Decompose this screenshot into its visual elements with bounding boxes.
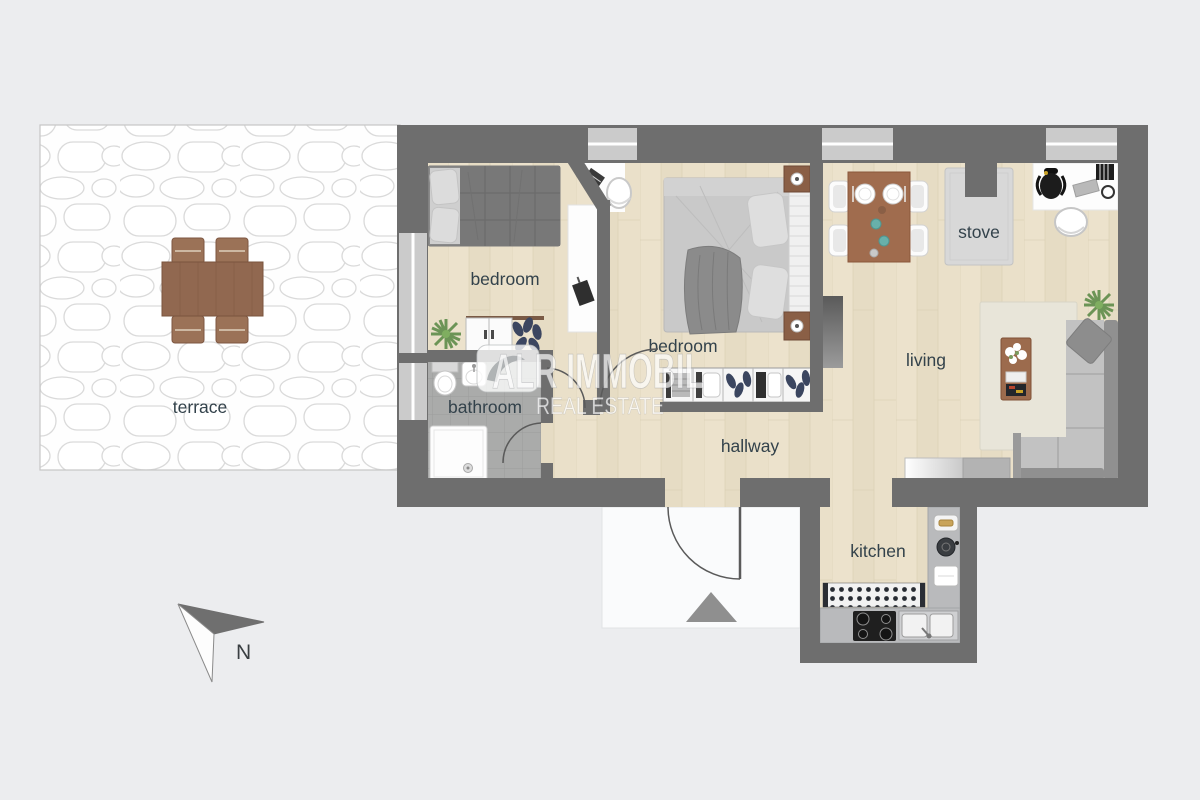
wall-chimney [965, 160, 997, 197]
headboard [789, 186, 810, 328]
kitchen-label: kitchen [850, 541, 905, 561]
double-bed [664, 178, 810, 334]
terrace-label: terrace [173, 397, 227, 417]
floorplan-page: terrace [0, 0, 1200, 800]
kitchen-sink [899, 611, 958, 640]
hallway-label: hallway [721, 436, 780, 456]
floorplan-canvas: terrace [0, 0, 1200, 800]
window-top-2 [822, 128, 893, 160]
toaster [934, 515, 958, 531]
wall-kitchen-left [800, 507, 820, 663]
wall-bottom-a [397, 478, 665, 507]
desk [568, 205, 598, 332]
dining-table [848, 172, 910, 262]
nightstand-top [784, 166, 810, 192]
window-left-bathroom [399, 363, 427, 420]
wall-bottom-b [740, 478, 830, 507]
kitchen-rug [823, 583, 925, 607]
tall-shelf [823, 296, 843, 368]
terrace-table [162, 262, 263, 316]
wall-bathroom-lower [541, 463, 553, 485]
wall-kitchen-bottom [800, 643, 977, 663]
wall-bedroom2-bottom [660, 402, 823, 412]
wall-bedroom2-right [810, 163, 823, 412]
watermark-brand: ALR IMMOBIL [492, 345, 704, 399]
coffee-table [1001, 338, 1031, 400]
cooktop [853, 611, 896, 641]
entrance-threshold [665, 478, 740, 507]
north-label: N [236, 641, 251, 664]
terrace-area: terrace [40, 125, 400, 470]
living-label: living [906, 350, 946, 370]
stove-label: stove [958, 222, 1000, 242]
nightstand-bottom [784, 312, 810, 340]
guest-chair [1055, 208, 1087, 236]
wall-top [397, 125, 1148, 163]
shower [430, 426, 487, 481]
window-top-1 [588, 128, 637, 160]
window-top-3 [1046, 128, 1117, 160]
plant [431, 319, 461, 349]
bedroom1-label: bedroom [470, 269, 539, 289]
window-left-bedroom [399, 233, 427, 353]
lowboard [905, 458, 1010, 480]
plant [1084, 290, 1114, 320]
wall-bottom-c [892, 478, 1148, 507]
bathroom-label: bathroom [448, 397, 522, 417]
wall-right [1118, 125, 1148, 507]
wood-floor-passage [830, 478, 892, 507]
single-bed [428, 166, 560, 246]
wall-kitchen-right [960, 507, 977, 663]
watermark-tagline: REAL ESTATE [536, 393, 664, 420]
toilet [432, 362, 458, 395]
